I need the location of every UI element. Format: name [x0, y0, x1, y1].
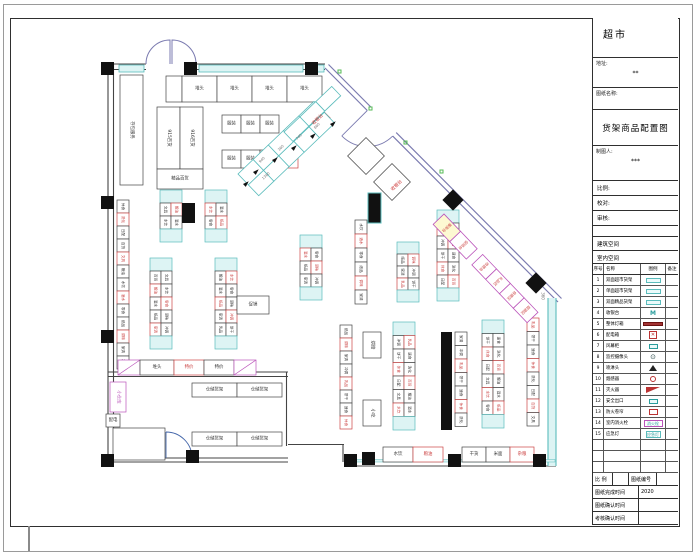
- legend-no: 7: [593, 341, 604, 351]
- shelf-label: 酒水: [408, 406, 413, 414]
- shelf-label: 百货: [154, 274, 159, 282]
- checkout-counter: [348, 138, 385, 175]
- shelf-label: 洗化: [408, 366, 413, 374]
- shelf-label: 日配: [531, 389, 536, 397]
- structural-column: [184, 62, 197, 75]
- shelf-label: 饼干: [486, 337, 491, 345]
- drawing-title: 货架商品配置图: [593, 110, 678, 146]
- shelf-label: 堆头: [153, 363, 162, 370]
- drafter-value: ***: [593, 158, 678, 165]
- room-label: 916百货: [189, 129, 196, 147]
- legend-row: 14室内消火栓消火栓: [593, 418, 678, 429]
- shelf-label: 纸品: [154, 313, 159, 321]
- legend-note: [666, 275, 678, 285]
- footer-scale-row: 比 例 图纸编号: [593, 473, 678, 486]
- footer-row-label: 图纸完成时间: [593, 486, 639, 498]
- proof-row: 校对:: [593, 196, 678, 211]
- legend-name: [604, 451, 641, 461]
- legend-note: [666, 396, 678, 406]
- structural-column: [186, 450, 199, 463]
- legend-row: 11灭火器: [593, 385, 678, 396]
- wall-pier: [441, 332, 452, 430]
- shelf-label: 休食: [441, 265, 446, 273]
- legend-note: [666, 440, 678, 450]
- entrance-double-door: [146, 40, 196, 64]
- shelf-label: 调味: [230, 300, 235, 308]
- legend-row: 10烟感器: [593, 374, 678, 385]
- legend-name: 整体灯箱: [604, 319, 641, 329]
- shelf-label: 堆头: [195, 85, 204, 92]
- shelf-label: 粮油: [424, 450, 433, 457]
- legend-symbol-box-red-x-icon: ✕: [649, 331, 657, 339]
- legend-symbol-pill-cyan-icon: [646, 289, 661, 294]
- shelf-label: 水饮: [397, 406, 402, 414]
- legend-header-no: 序号: [593, 264, 604, 274]
- drawing-sheet: 休食洗化日配百货文具粮油水饮酒水零食纸品调味家清冲调文具粮油水饮酒水水饮酒水零食…: [0, 0, 700, 555]
- legend-no: 9: [593, 363, 604, 373]
- legend-no: 3: [593, 297, 604, 307]
- shelf-label: 米面: [494, 450, 503, 457]
- shelf-label: 水饮: [209, 206, 214, 214]
- shelf-label: 干货: [470, 450, 479, 457]
- shelf-label: 零食: [165, 300, 170, 308]
- shelf-endcap: [393, 417, 415, 431]
- legend-symbol: [641, 363, 666, 373]
- shelf-label: 休食: [531, 362, 536, 370]
- shelf-label: 速食: [344, 406, 349, 414]
- shelf-label: 休食: [121, 203, 126, 211]
- structural-column: [101, 62, 114, 75]
- shelf-label: 零食: [359, 251, 364, 259]
- shelf-label: 纸品: [304, 264, 309, 272]
- shelf-label: 冲调: [412, 268, 417, 276]
- legend-symbol-pill-cyan-icon: [646, 278, 661, 283]
- footer-row-value: 2020: [639, 486, 678, 498]
- legend-row: 5整体灯箱: [593, 319, 678, 330]
- legend-symbol-pill-teal-sm-icon: [649, 399, 658, 404]
- room-label: 小仓库: [116, 390, 123, 404]
- shelf-endcap: [205, 190, 227, 203]
- room-label: 存包服务: [129, 121, 136, 139]
- shelf-label: 家清: [304, 277, 309, 285]
- shelf-endcap: [397, 242, 419, 254]
- legend-no: 14: [593, 418, 604, 428]
- room-label: 配电: [109, 416, 118, 423]
- shelf-label: 粮油: [408, 393, 413, 401]
- shelf-label: 水饮: [121, 281, 126, 289]
- shelf-label: 特价: [185, 363, 194, 370]
- shelf-label: 粮油: [175, 206, 180, 214]
- shelf-label: 冲调: [230, 313, 235, 321]
- shelf-label: 冲调: [397, 339, 402, 347]
- shelf-label: 休食: [459, 403, 464, 411]
- room-label: 小吃: [370, 409, 377, 418]
- shelf-label: 乳品: [344, 380, 349, 388]
- legend-note: [666, 308, 678, 318]
- shelf-label: 家清: [401, 268, 406, 276]
- shelf-label: 冲调: [441, 239, 446, 247]
- legend-symbol: [641, 275, 666, 285]
- shelf-endcap: [437, 288, 459, 301]
- legend-name: 双面超市货架: [604, 275, 641, 285]
- shelf-label: 零食: [315, 251, 320, 259]
- shelf-label: 家清: [154, 326, 159, 334]
- shelf-label: 文具: [397, 393, 402, 401]
- door-sensor: [369, 107, 372, 110]
- shelf-label: 速食: [531, 348, 536, 356]
- legend-name: 应急灯: [604, 429, 641, 439]
- shelf-label: 乳品: [531, 321, 536, 329]
- shelf-label: 粮油: [219, 274, 224, 282]
- shelf-label: 水饮: [486, 391, 491, 399]
- legend-no: [593, 440, 604, 450]
- legend-note: [666, 418, 678, 428]
- legend-note: [666, 330, 678, 340]
- shelf-label: 饼干: [344, 393, 349, 401]
- shelf-label: 饼干: [230, 326, 235, 334]
- legend-row: [593, 451, 678, 462]
- legend-no: 10: [593, 374, 604, 384]
- legend-name: 监控摄像头: [604, 352, 641, 362]
- shelf-endcap: [205, 229, 227, 242]
- structural-column: [344, 454, 357, 467]
- structural-column: [533, 454, 546, 467]
- legend-note: [666, 451, 678, 461]
- legend-symbol-box-magenta-icon: 消火栓: [644, 420, 663, 427]
- legend-note: [666, 385, 678, 395]
- scale-row: 比例:: [593, 181, 678, 196]
- footer-row: 考核确认时间: [593, 512, 678, 525]
- structural-column: [362, 452, 375, 465]
- shelf-label: 乳品: [459, 362, 464, 370]
- diagonal-column: [442, 189, 463, 210]
- legend-row: 15应急灯应急灯: [593, 429, 678, 440]
- shelf-label: 仓储货架: [251, 435, 269, 442]
- legend-no: 1: [593, 275, 604, 285]
- door-sensor: [338, 70, 341, 73]
- shelf-label: 服装: [227, 120, 236, 127]
- legend-name: [604, 440, 641, 450]
- shelf-label: 冲调: [315, 277, 320, 285]
- legend-symbol: [641, 319, 666, 329]
- shelf-label: 酒水: [497, 391, 502, 399]
- shelf-label: 洗化: [121, 216, 126, 224]
- shelf-label: 服装: [265, 120, 274, 127]
- legend-note: [666, 407, 678, 417]
- shelf-label: 调味: [359, 279, 364, 287]
- shelf-label: 纸品: [219, 300, 224, 308]
- shelf-label: 酒水: [304, 251, 309, 259]
- structural-column: [101, 330, 114, 343]
- plan-generated-content: 休食洗化日配百货文具粮油水饮酒水零食纸品调味家清冲调文具粮油水饮酒水水饮酒水零食…: [101, 62, 547, 467]
- shelf-label: 日配: [121, 229, 126, 237]
- shelf-endcap: [482, 320, 504, 334]
- footer-rows: 图纸完成时间2020图纸确认时间考核确认时间: [593, 486, 678, 525]
- structural-column: [305, 62, 318, 75]
- drafter-label: 制图人:: [596, 148, 613, 155]
- structural-column: [448, 454, 461, 467]
- door-sensor: [440, 170, 443, 173]
- store-name: 超市: [593, 18, 678, 58]
- footer-row-value: [639, 512, 678, 524]
- legend-name: 室内消火栓: [604, 418, 641, 428]
- legend-symbol-circle-red-icon: [650, 376, 656, 382]
- legend-symbol-pill-cyan-icon: [646, 300, 661, 305]
- legend-symbol: [641, 385, 666, 395]
- shelf-label: 日配: [486, 364, 491, 372]
- shelf-label: 服装: [227, 155, 236, 162]
- legend-symbol-box-cyan-icon: 应急灯: [646, 431, 661, 438]
- shelf-label: 堆头: [300, 85, 309, 92]
- room-label: 促销: [249, 301, 258, 308]
- shelf-label: 零食: [121, 307, 126, 315]
- shelf-label: 家清: [121, 346, 126, 354]
- legend-no: 11: [593, 385, 604, 395]
- legend-no: 6: [593, 330, 604, 340]
- shelf-label: 乳品: [219, 326, 224, 334]
- legend-symbol: 应急灯: [641, 429, 666, 439]
- title-block: 超市 地址: ** 图纸名称: 货架商品配置图 制图人: *** 比例: 校对:…: [592, 18, 678, 525]
- footer-row: 图纸确认时间: [593, 499, 678, 512]
- legend-row: 12安全出口: [593, 396, 678, 407]
- shelf-label: 水饮: [359, 223, 364, 231]
- shelf-label: 冲调: [165, 326, 170, 334]
- legend-symbol: [641, 451, 666, 461]
- legend-note: [666, 286, 678, 296]
- legend-name: [604, 462, 641, 472]
- legend-note: [666, 363, 678, 373]
- shelf-label: 堆头: [265, 85, 274, 92]
- shelf-label: 水饮: [165, 287, 170, 295]
- shelf-label: 服装: [246, 120, 255, 127]
- shelf-endcap: [397, 290, 419, 302]
- shelf-label: 酒水: [154, 300, 159, 308]
- interior-area-row: 室内空间: [593, 251, 678, 264]
- legend-row: [593, 440, 678, 451]
- footer-row: 图纸完成时间2020: [593, 486, 678, 499]
- shelf-label: 仓储货架: [206, 435, 224, 442]
- shelf-label: 文具: [486, 377, 491, 385]
- legend-symbol: [641, 396, 666, 406]
- shelf-label: 速食: [452, 252, 457, 260]
- shelf-endcap: [215, 336, 237, 349]
- shelf-label: 粮油: [497, 377, 502, 385]
- legend-symbol-pill-teal-sm-icon: [649, 344, 658, 349]
- legend-table: 1双面超市货架2单面超市货架3双面精品货架4收银台M5整体灯箱6配电箱✕7风幕柜…: [593, 275, 678, 473]
- legend-row: 2单面超市货架: [593, 286, 678, 297]
- shelf-label: 酒水: [219, 287, 224, 295]
- shelf-label: 水饮: [394, 450, 403, 457]
- legend-row: 1双面超市货架: [593, 275, 678, 286]
- footer-sheetno-label: 图纸编号: [629, 473, 657, 485]
- legend-symbol-box-red-icon: [649, 409, 658, 415]
- shelf-label: 调味: [315, 264, 320, 272]
- shelf-endcap: [160, 190, 182, 203]
- diagonal-column: [525, 272, 546, 293]
- shelf-label: 仓储货架: [251, 386, 269, 393]
- legend-symbol: [641, 341, 666, 351]
- legend-header-note: 备注: [666, 264, 678, 274]
- room-label: 915百货: [166, 129, 173, 147]
- shelf-label: 冲调: [344, 367, 349, 375]
- legend-no: 8: [593, 352, 604, 362]
- legend-row: 13防火卷帘: [593, 407, 678, 418]
- shelf-label: 洗化: [459, 416, 464, 424]
- legend-note: [666, 462, 678, 472]
- shelf-label: 洗化: [452, 265, 457, 273]
- shelf-endcap: [215, 258, 237, 271]
- legend-no: [593, 451, 604, 461]
- footer-row-value: [639, 499, 678, 511]
- legend-no: 15: [593, 429, 604, 439]
- shelf-label: 文具: [121, 255, 126, 263]
- legend-name: 防火卷帘: [604, 407, 641, 417]
- shelf-label: 洗化: [531, 375, 536, 383]
- legend-symbol: 消火栓: [641, 418, 666, 428]
- legend-symbol: [641, 297, 666, 307]
- structural-column: [101, 454, 114, 467]
- shelf-cell: [166, 76, 182, 102]
- legend-header-sym: 图例: [641, 264, 666, 274]
- shelf-endcap: [393, 322, 415, 336]
- shelf-label: 休食: [397, 366, 402, 374]
- wall-pier: [182, 203, 195, 223]
- shelf-label: 休食: [344, 419, 349, 427]
- legend-row: 9喷淋头: [593, 363, 678, 374]
- legend-no: 2: [593, 286, 604, 296]
- shelf-label: 纸品: [344, 328, 349, 336]
- legend-no: 13: [593, 407, 604, 417]
- shelf-label: 日配: [397, 379, 402, 387]
- shelf-label: 速食: [497, 337, 502, 345]
- legend-no: 12: [593, 396, 604, 406]
- shelf-label: 纸品: [359, 265, 364, 273]
- legend-symbol: [641, 286, 666, 296]
- legend-note: [666, 352, 678, 362]
- shelf-label: 纸品: [121, 320, 126, 328]
- legend-row: 8监控摄像头⊙: [593, 352, 678, 363]
- shelf-label: 百货: [121, 242, 126, 250]
- legend-symbol: [641, 462, 666, 472]
- shelf-label: 家清: [219, 313, 224, 321]
- room-label: 精品百货: [171, 175, 189, 182]
- legend-symbol-tri-black-icon: [649, 365, 657, 371]
- shelf-label: 冲调: [459, 349, 464, 357]
- legend-symbol-bar-red-icon: [643, 322, 663, 326]
- legend-note: [666, 429, 678, 439]
- shelf-label: 家清: [359, 293, 364, 301]
- shelf-label: 堆头: [230, 85, 239, 92]
- shelf-label: 百货: [452, 278, 457, 286]
- shelf-label: 饼干: [441, 252, 446, 260]
- shelf-label: 速食: [459, 389, 464, 397]
- legend-name: 灭火器: [604, 385, 641, 395]
- shelf-endcap: [150, 258, 172, 271]
- legend-row: [593, 462, 678, 473]
- legend-row: 7风幕柜: [593, 341, 678, 352]
- shelf-label: 纸品: [401, 256, 406, 264]
- plan-text: 360: [541, 292, 546, 300]
- legend-symbol: [641, 407, 666, 417]
- legend-symbol-m-teal-icon: M: [650, 310, 656, 317]
- room-label: 烘焙: [370, 341, 377, 350]
- drawing-name-row: 图纸名称:: [593, 88, 678, 110]
- legend-name: 喷淋头: [604, 363, 641, 373]
- drafter-row: 制图人: ***: [593, 146, 678, 181]
- shelf-label: 酒水: [220, 206, 225, 214]
- legend-name: 烟感器: [604, 374, 641, 384]
- shelf-label: 文具: [531, 416, 536, 424]
- shelf-label: 酒水: [359, 237, 364, 245]
- address-label: 地址:: [596, 60, 608, 67]
- shelf-label: 乳品: [401, 280, 406, 288]
- structural-column: [101, 196, 114, 209]
- legend-note: [666, 341, 678, 351]
- shelf-label: 百货: [408, 379, 413, 387]
- shelf-endcap: [300, 287, 322, 300]
- shelf-label: 调味: [344, 341, 349, 349]
- shelf-label: 杂粮: [518, 450, 527, 457]
- freezer-cabinet: [368, 193, 381, 223]
- shelf-label: 纸品: [497, 404, 502, 412]
- shelf-label: 调味: [412, 256, 417, 264]
- shelf-label: 家清: [459, 335, 464, 343]
- legend-symbol: ✕: [641, 330, 666, 340]
- legend-no: [593, 462, 604, 472]
- right-wall-band: [548, 298, 556, 466]
- blank-row: [593, 226, 678, 237]
- legend-symbol: [641, 374, 666, 384]
- legend-no: 4: [593, 308, 604, 318]
- shelf-endcap: [300, 235, 322, 248]
- shelf-endcap: [482, 415, 504, 429]
- shelf-label: 纸品: [220, 219, 225, 227]
- shelf-label: 家清: [344, 354, 349, 362]
- shelf-label: 饼干: [459, 376, 464, 384]
- legend-symbol-flag-red-icon: [646, 387, 660, 393]
- shelf-label: 乳品: [408, 339, 413, 347]
- shelf-label: 水饮: [230, 274, 235, 282]
- shelf-label: 酒水: [175, 219, 180, 227]
- footer-scale-value: [613, 473, 629, 485]
- legend-symbol: M: [641, 308, 666, 318]
- legend-row: 6配电箱✕: [593, 330, 678, 341]
- shelf-label: 水饮: [164, 219, 169, 227]
- legend-note: [666, 374, 678, 384]
- legend-name: 单面超市货架: [604, 286, 641, 296]
- shelf-label: 饼干: [412, 280, 417, 288]
- shelf-label: 日配: [441, 278, 446, 286]
- footer-sheetno-value: [657, 473, 678, 485]
- legend-row: 3双面精品货架: [593, 297, 678, 308]
- legend-name: 收银台: [604, 308, 641, 318]
- legend-name: 风幕柜: [604, 341, 641, 351]
- shelf-endcap: [150, 336, 172, 349]
- shelf-label: 文具: [164, 206, 169, 214]
- footer-row-label: 考核确认时间: [593, 512, 639, 524]
- room-box: [113, 428, 165, 460]
- legend-note: [666, 319, 678, 329]
- legend-name: 双面精品货架: [604, 297, 641, 307]
- shelf-label: 特价: [215, 363, 224, 370]
- legend-no: 5: [593, 319, 604, 329]
- shelf-label: 百货: [497, 364, 502, 372]
- footer-row-label: 图纸确认时间: [593, 499, 639, 511]
- shelf-label: 酒水: [121, 294, 126, 302]
- shelf-label: 洗化: [497, 350, 502, 358]
- legend-name: 安全出口: [604, 396, 641, 406]
- legend-header-name: 名称: [604, 264, 641, 274]
